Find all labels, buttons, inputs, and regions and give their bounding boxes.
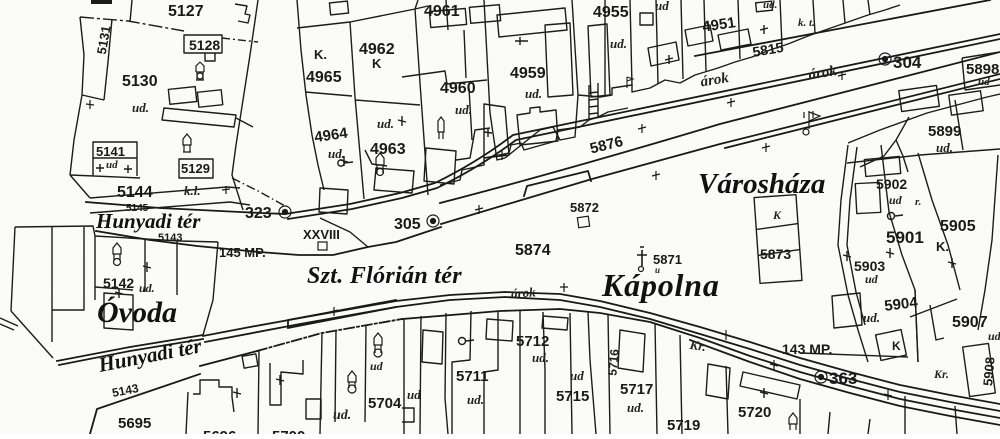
svg-text:5902: 5902 — [876, 176, 907, 192]
svg-text:ud.: ud. — [139, 281, 155, 295]
svg-text:5130: 5130 — [122, 73, 158, 90]
svg-text:r.: r. — [915, 196, 921, 208]
svg-text:4955: 4955 — [593, 4, 629, 21]
svg-text:ud.: ud. — [132, 100, 149, 115]
svg-text:4960: 4960 — [440, 80, 476, 97]
svg-text:Városháza: Városháza — [698, 168, 825, 200]
svg-text:5905: 5905 — [940, 218, 976, 235]
svg-text:5720: 5720 — [738, 404, 771, 421]
svg-text:k.l.: k.l. — [184, 183, 201, 198]
svg-text:4959: 4959 — [510, 65, 546, 82]
svg-text:363: 363 — [829, 369, 857, 388]
svg-text:5715: 5715 — [556, 388, 589, 405]
svg-text:4965: 4965 — [306, 69, 342, 86]
svg-text:ud: ud — [978, 76, 990, 88]
svg-text:5908: 5908 — [980, 356, 997, 386]
svg-text:5901: 5901 — [886, 228, 924, 247]
svg-text:4963: 4963 — [370, 141, 406, 158]
svg-text:5712: 5712 — [516, 333, 549, 350]
svg-text:5128: 5128 — [189, 37, 220, 53]
svg-text:Kápolna: Kápolna — [601, 267, 720, 303]
svg-text:ud.: ud. — [532, 350, 549, 365]
svg-text:304: 304 — [893, 53, 922, 72]
svg-text:5716: 5716 — [605, 348, 621, 376]
svg-text:5696: 5696 — [203, 428, 236, 434]
svg-text:ud: ud — [407, 387, 421, 402]
svg-text:ud: ud — [988, 329, 1000, 343]
svg-text:Hunyadi tér: Hunyadi tér — [95, 209, 201, 233]
svg-text:ud.: ud. — [467, 392, 484, 407]
svg-text:323: 323 — [245, 205, 272, 222]
svg-text:k. t.: k. t. — [798, 17, 815, 29]
svg-text:ud.: ud. — [525, 86, 542, 101]
svg-text:ud.: ud. — [627, 400, 644, 415]
svg-text:5873: 5873 — [760, 246, 791, 262]
svg-text:ud: ud — [655, 0, 669, 13]
svg-text:5872: 5872 — [570, 200, 599, 215]
svg-text:5907: 5907 — [952, 314, 988, 331]
svg-text:K: K — [372, 56, 382, 71]
svg-text:305: 305 — [394, 216, 421, 233]
svg-text:ud.: ud. — [610, 36, 627, 51]
svg-text:5711: 5711 — [456, 368, 489, 385]
svg-text:ud: ud — [865, 272, 879, 286]
svg-text:ud.: ud. — [763, 0, 777, 11]
svg-text:K.: K. — [936, 239, 949, 254]
svg-text:5695: 5695 — [118, 415, 151, 432]
svg-text:árok: árok — [511, 284, 537, 301]
svg-text:Kr.: Kr. — [933, 367, 949, 381]
svg-text:Kr.: Kr. — [688, 337, 707, 354]
svg-text:Óvoda: Óvoda — [97, 296, 177, 329]
svg-text:5899: 5899 — [928, 123, 961, 140]
svg-text:5129: 5129 — [181, 161, 210, 176]
svg-text:XXVIII: XXVIII — [303, 227, 340, 242]
svg-text:ud: ud — [570, 368, 584, 383]
svg-text:Szt. Flórián tér: Szt. Flórián tér — [307, 263, 462, 289]
svg-text:K.: K. — [314, 47, 327, 62]
svg-text:5700: 5700 — [272, 428, 305, 434]
svg-text:5717: 5717 — [620, 381, 653, 398]
svg-text:5142: 5142 — [103, 275, 134, 291]
svg-text:ud.: ud. — [863, 310, 880, 325]
svg-text:ud.: ud. — [936, 140, 953, 155]
svg-text:ud.: ud. — [328, 146, 345, 161]
svg-text:ud.: ud. — [455, 102, 472, 117]
svg-text:5143: 5143 — [158, 232, 182, 244]
svg-text:ud.: ud. — [333, 408, 351, 423]
svg-text:ud: ud — [106, 159, 118, 171]
svg-text:5127: 5127 — [168, 3, 204, 20]
svg-text:5144: 5144 — [117, 184, 153, 201]
svg-text:K: K — [892, 339, 901, 353]
svg-text:ud: ud — [889, 193, 903, 207]
svg-text:5719: 5719 — [667, 417, 700, 434]
svg-text:5704: 5704 — [368, 395, 402, 412]
svg-text:ud: ud — [370, 359, 384, 373]
svg-text:K: K — [772, 208, 782, 222]
svg-text:5141: 5141 — [96, 144, 125, 159]
svg-text:4961: 4961 — [424, 3, 460, 20]
svg-text:143 MP.: 143 MP. — [782, 341, 832, 357]
svg-text:5874: 5874 — [515, 242, 551, 259]
svg-text:145 MP.: 145 MP. — [219, 245, 266, 260]
svg-text:ud.: ud. — [377, 116, 394, 131]
